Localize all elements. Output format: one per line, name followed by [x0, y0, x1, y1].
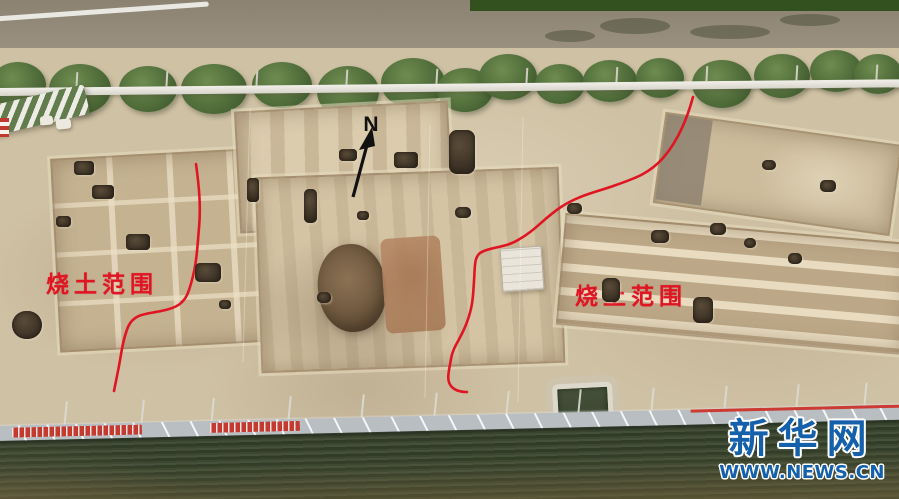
watermark-url: WWW.NEWS.CN	[719, 462, 885, 483]
pit	[304, 189, 317, 223]
shrub	[754, 54, 810, 98]
burnt-earth-patch	[380, 235, 446, 334]
pit	[247, 178, 259, 202]
pit	[651, 230, 669, 243]
pit	[788, 253, 802, 264]
tent-flag	[0, 118, 9, 137]
pit	[219, 300, 231, 309]
shrub	[479, 54, 537, 100]
pit	[449, 130, 475, 174]
pit	[693, 297, 713, 323]
slogan-banner	[210, 421, 300, 433]
excavation-trench-right-upper	[653, 112, 899, 236]
far-hedge-strip	[470, 0, 899, 11]
burnt-soil-label-left: 烧土范围	[46, 265, 158, 299]
pit	[710, 223, 726, 235]
xinhua-watermark: 新华网 WWW.NEWS.CN	[719, 418, 885, 483]
road-shadow-patch	[780, 14, 840, 26]
burnt-soil-label-right: 烧土范围	[575, 277, 687, 311]
covered-feature-square	[500, 246, 545, 293]
shrub	[636, 58, 684, 98]
slogan-banner	[12, 425, 142, 438]
work-table	[56, 118, 72, 130]
pit	[12, 311, 42, 339]
pit	[394, 152, 418, 168]
grey-soil-patch	[655, 114, 713, 206]
pit	[762, 160, 776, 170]
pit	[357, 211, 369, 220]
aerial-photo-stage: N 烧土范围 烧土范围 新华网 WWW.NEWS.CN	[0, 0, 899, 499]
pit	[744, 238, 756, 248]
pit	[92, 185, 114, 199]
pit	[820, 180, 836, 192]
pit	[317, 292, 331, 303]
pit	[126, 234, 150, 250]
pit	[602, 278, 620, 302]
pit	[339, 149, 357, 161]
watermark-logo: 新华网	[719, 418, 885, 460]
pit	[567, 203, 582, 214]
work-table	[40, 115, 54, 125]
pit	[455, 207, 471, 218]
pit	[74, 161, 94, 175]
pit	[56, 216, 71, 227]
pit	[195, 263, 221, 282]
